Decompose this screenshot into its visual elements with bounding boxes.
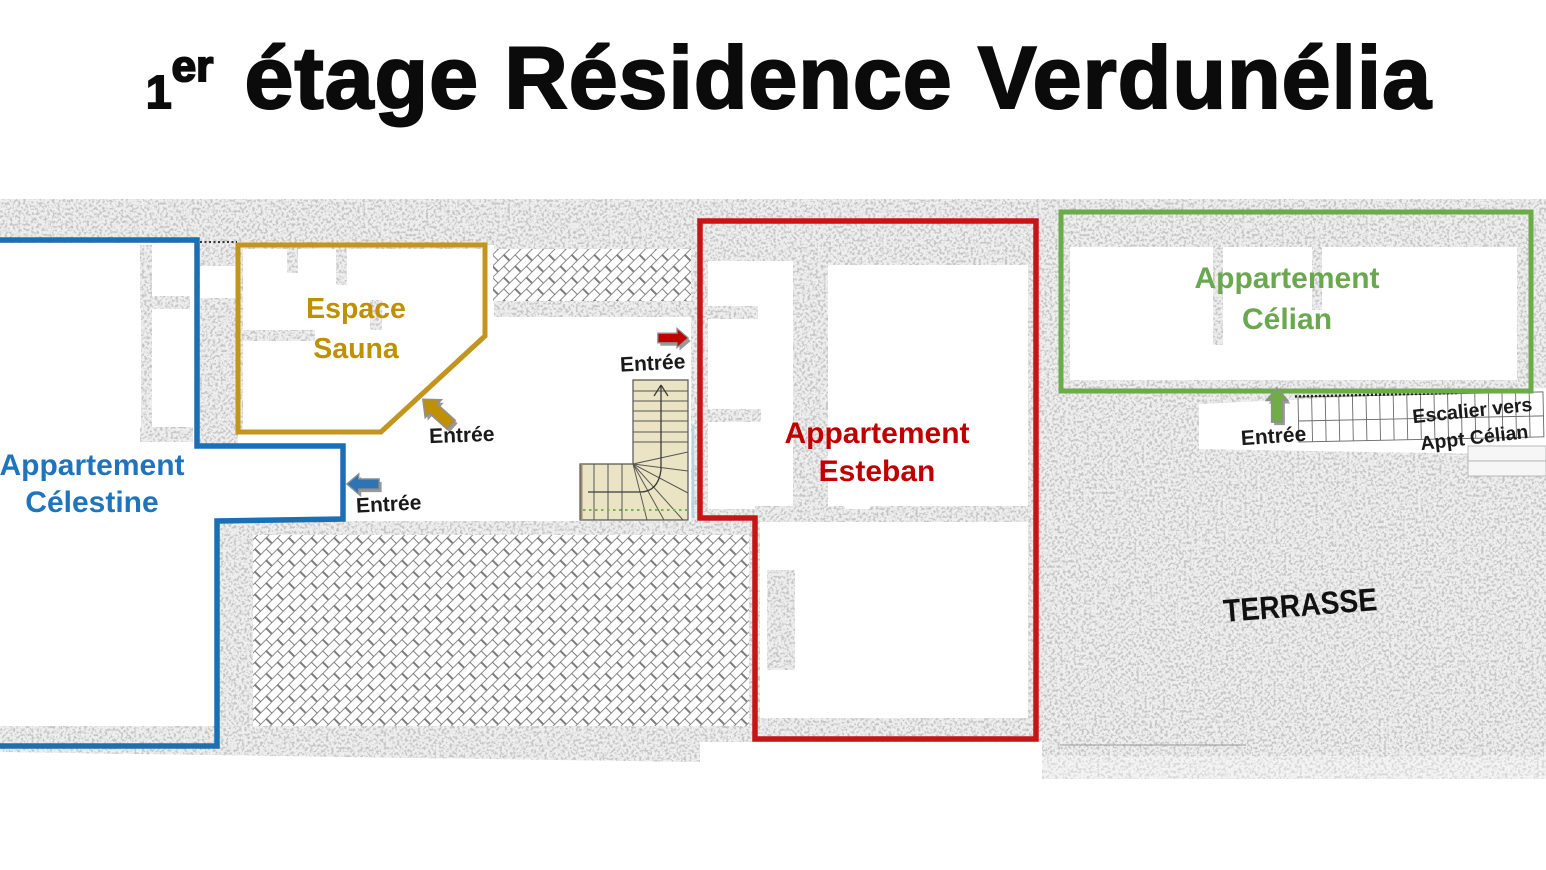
svg-text:Entrée: Entrée: [429, 423, 495, 448]
svg-text:Entrée: Entrée: [619, 350, 685, 376]
svg-text:Appartement: Appartement: [0, 449, 185, 482]
svg-text:Appartement: Appartement: [784, 417, 969, 450]
svg-text:Esteban: Esteban: [819, 455, 936, 488]
svg-text:Entrée: Entrée: [1240, 423, 1307, 451]
svg-text:Célestine: Célestine: [25, 486, 158, 519]
svg-text:Appartement: Appartement: [1194, 262, 1379, 295]
svg-text:Espace: Espace: [306, 293, 406, 325]
svg-text:Célian: Célian: [1242, 303, 1332, 336]
svg-text:Sauna: Sauna: [313, 333, 400, 365]
svg-text:1er étage Résidence Verdunélia: 1er étage Résidence Verdunélia: [146, 28, 1432, 127]
svg-text:Entrée: Entrée: [355, 491, 421, 517]
